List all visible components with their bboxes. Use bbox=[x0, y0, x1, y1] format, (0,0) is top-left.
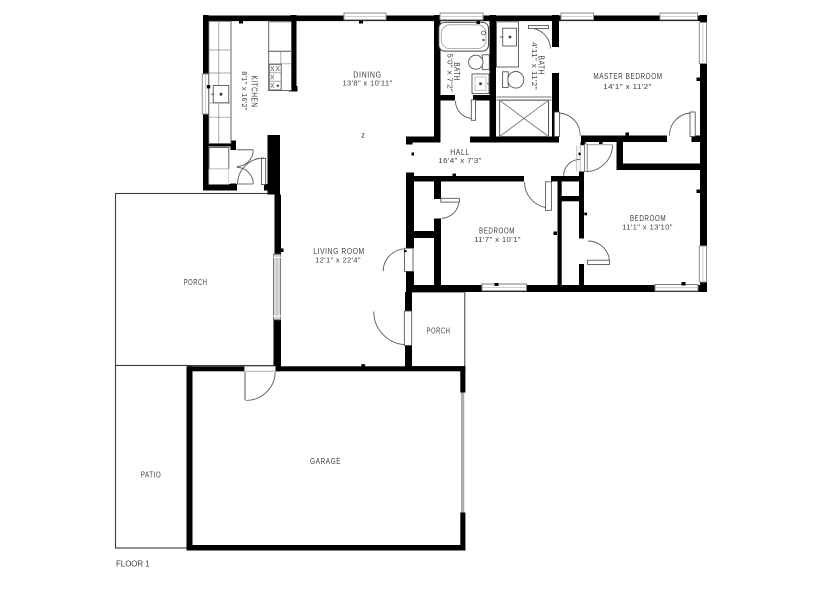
svg-text:KITCHEN: KITCHEN bbox=[249, 76, 258, 108]
svg-text:11'1" x 13'10": 11'1" x 13'10" bbox=[622, 225, 673, 232]
svg-text:4'11" x 11'2": 4'11" x 11'2" bbox=[530, 42, 537, 90]
svg-text:FLOOR 1: FLOOR 1 bbox=[116, 560, 150, 569]
svg-text:LIVING ROOM: LIVING ROOM bbox=[313, 247, 365, 256]
svg-text:13'8" x 10'11": 13'8" x 10'11" bbox=[343, 81, 393, 88]
svg-text:HALL: HALL bbox=[450, 148, 470, 157]
svg-text:5'0" x 7'2": 5'0" x 7'2" bbox=[446, 53, 453, 92]
svg-text:BEDROOM: BEDROOM bbox=[479, 227, 515, 236]
svg-text:MASTER BEDROOM: MASTER BEDROOM bbox=[593, 72, 662, 81]
svg-text:8'1" x 16'2": 8'1" x 16'2" bbox=[240, 71, 247, 111]
svg-text:11'7" x 10'1": 11'7" x 10'1" bbox=[474, 237, 521, 244]
svg-text:12'1" x 22'4": 12'1" x 22'4" bbox=[315, 258, 361, 265]
svg-text:BEDROOM: BEDROOM bbox=[630, 214, 666, 223]
svg-text:DINING: DINING bbox=[353, 71, 382, 80]
svg-text:16'4" x 7'3": 16'4" x 7'3" bbox=[438, 158, 482, 165]
svg-text:z: z bbox=[361, 133, 365, 140]
svg-text:PORCH: PORCH bbox=[427, 326, 451, 335]
svg-text:PORCH: PORCH bbox=[184, 278, 208, 287]
svg-text:GARAGE: GARAGE bbox=[310, 457, 341, 466]
svg-text:14'1" x 11'2": 14'1" x 11'2" bbox=[603, 84, 652, 91]
svg-text:PATIO: PATIO bbox=[141, 470, 162, 479]
